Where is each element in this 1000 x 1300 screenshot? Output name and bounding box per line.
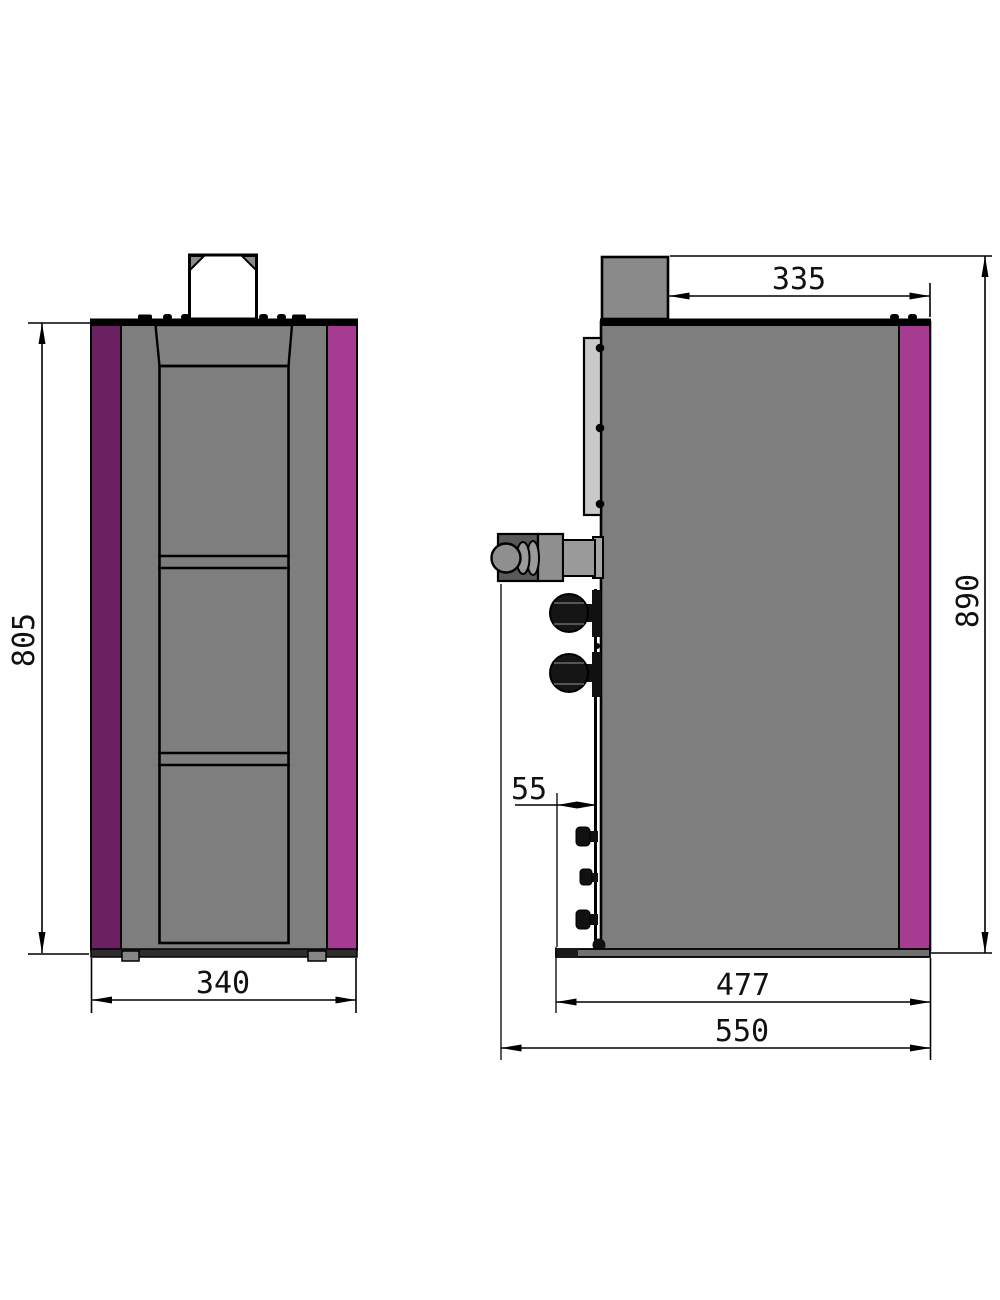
front-strip-right: [327, 322, 357, 950]
valve-knob-2: [550, 652, 601, 697]
arrow-down-icon: [39, 932, 46, 953]
dim-label-flue-to-back: 335: [772, 262, 826, 297]
technical-drawing-page: 805 340 335 890 55 477 550: [0, 0, 1000, 1300]
side-top-band: [600, 319, 931, 327]
bolt-cap-3: [576, 910, 590, 929]
front-top-lug-outer-left: [138, 315, 152, 323]
back-plate-bolt-2: [596, 424, 605, 433]
edge-dot: [594, 643, 600, 649]
bolt-cap-1: [576, 827, 590, 846]
arrow-right-icon: [910, 999, 931, 1006]
arrow-down-icon: [982, 932, 989, 953]
arrow-left-icon: [501, 1045, 522, 1052]
side-body-panel: [601, 322, 930, 950]
arrow-up-icon: [39, 323, 46, 344]
valve-circle-1: [550, 594, 588, 632]
arrow-left-icon: [92, 997, 113, 1004]
technical-drawing: 805 340 335 890 55 477 550: [0, 0, 1000, 1300]
side-top-bump-1: [890, 314, 899, 320]
arrow-left-icon: [557, 802, 577, 809]
valve-knob-1: [550, 590, 601, 637]
front-top-bump-2: [181, 314, 190, 320]
arrow-right-icon: [910, 1045, 931, 1052]
arrow-left-icon: [669, 293, 690, 300]
front-top-bump-1: [163, 314, 172, 320]
dim-label-base-depth: 477: [716, 968, 770, 1003]
flue-pipe-front: [190, 255, 257, 319]
flue-pipe-front-body: [190, 255, 257, 319]
dim-label-overall-height: 890: [951, 574, 986, 628]
side-base-plate: [556, 949, 930, 957]
front-body-panel: [121, 322, 327, 950]
arrow-up-icon: [982, 256, 989, 277]
flue-pipe-side: [602, 257, 668, 319]
front-top-bump-4: [277, 314, 286, 320]
front-strip-left: [91, 322, 121, 950]
front-foot-left: [122, 951, 139, 961]
side-front-flange-line: [594, 589, 597, 945]
pipe-connector: [492, 534, 604, 581]
valve-circle-2: [550, 654, 588, 692]
front-top-bump-3: [259, 314, 268, 320]
side-strip-magenta: [899, 322, 930, 950]
connector-block-mid: [538, 534, 563, 581]
front-view: [90, 255, 358, 961]
back-plate-bolt-1: [596, 344, 605, 353]
arrow-right-icon: [336, 997, 357, 1004]
side-base-foot: [556, 949, 578, 957]
arrow-left-icon: [556, 999, 577, 1006]
front-top-band: [90, 319, 358, 327]
dim-label-front-height: 805: [7, 613, 42, 667]
back-plate-bolt-3: [596, 500, 605, 509]
arrow-right-icon: [910, 293, 931, 300]
front-top-cap: [156, 325, 293, 366]
nipple-end: [492, 544, 521, 573]
front-foot-right: [308, 951, 326, 961]
dim-label-front-clearance: 55: [511, 772, 547, 807]
bolt-cap-2: [580, 869, 592, 885]
dim-label-front-width: 340: [196, 966, 250, 1001]
front-top-lug-outer-right: [292, 315, 306, 323]
connector-cylinder: [563, 540, 595, 576]
dim-label-overall-depth: 550: [715, 1014, 769, 1049]
side-top-bump-2: [908, 314, 917, 320]
